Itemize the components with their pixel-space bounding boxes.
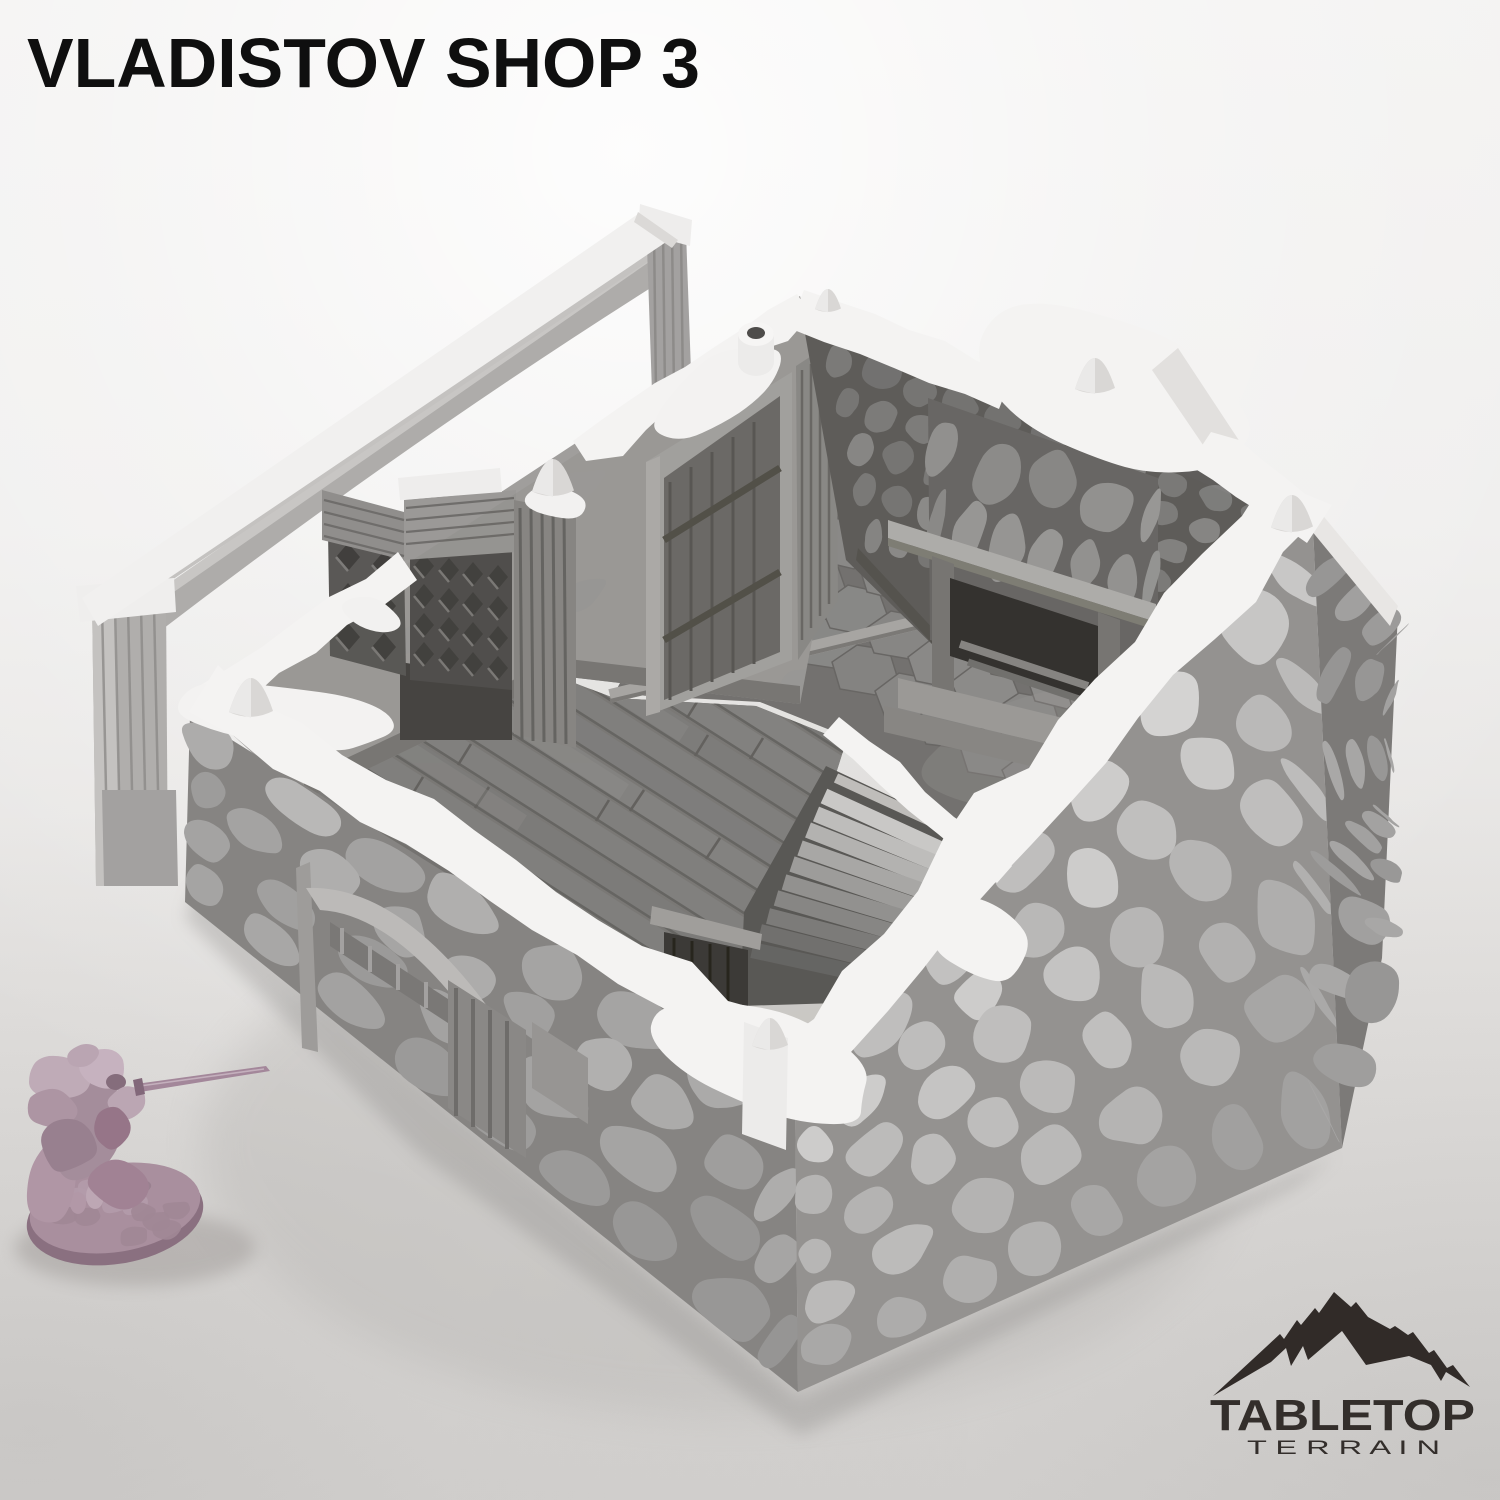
svg-text:TABLETOP: TABLETOP bbox=[1210, 1391, 1475, 1440]
svg-text:T E R R A I N: T E R R A I N bbox=[1247, 1438, 1440, 1459]
svg-text:VLADISTOV SHOP 3: VLADISTOV SHOP 3 bbox=[27, 24, 700, 102]
